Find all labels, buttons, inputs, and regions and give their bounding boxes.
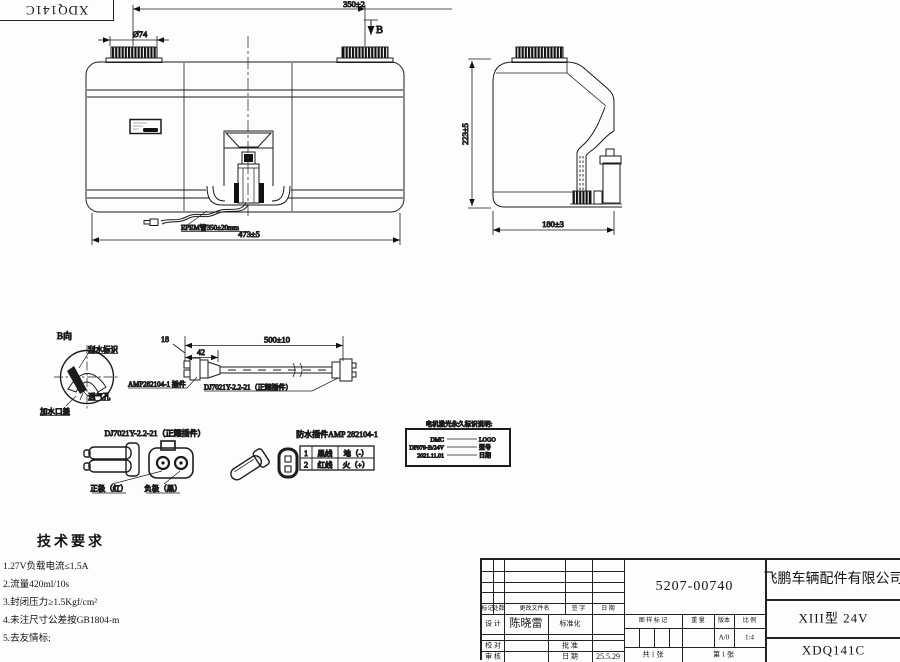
pin-table: 1 黑线 地（-） 2 红线 火（+）	[300, 446, 374, 470]
tech-requirements-list: 1.27V负载电流≤1.5A 2.流量420ml/10s 3.封闭压力≥1.5K…	[3, 558, 233, 648]
tech-item-4: 4.未注尺寸公差按GB1804-m	[3, 612, 233, 630]
laser-row3-content: 2021.11.01	[417, 454, 444, 460]
dj-connector-side	[332, 359, 356, 381]
dim-350-text: 350±2	[343, 0, 365, 9]
pump-recess	[207, 186, 290, 205]
dim-180-text: 180±3	[542, 219, 564, 229]
part-code: XDQ141C	[802, 643, 865, 656]
tech-requirements: 技术要求 1.27V负载电流≤1.5A 2.流量420ml/10s 3.封闭压力…	[3, 531, 233, 648]
wiper-mark-callout: 刮水标识	[79, 344, 118, 368]
pin-2-wire: 红线	[318, 460, 333, 470]
dim-350	[133, 5, 452, 46]
side-view: 223±5 180±3	[460, 47, 622, 235]
laser-row1-meaning: LOGO	[479, 438, 496, 444]
rev-count-header: 处数	[492, 606, 504, 612]
date-value: 25.5.29	[596, 653, 620, 661]
amp-detail-front	[279, 449, 297, 477]
rev-file-header: 更改文件名	[519, 606, 549, 612]
tech-item-1: 1.27V负载电流≤1.5A	[3, 558, 233, 576]
pin-2: 2	[304, 461, 308, 470]
washer-hose	[144, 203, 248, 226]
design-label: 设 计	[485, 621, 501, 628]
drawing-sheet: { "corner_stamp": { "code": "XDQ141C" },…	[0, 0, 900, 660]
amp-callout: AMP282104-1 插件	[128, 377, 197, 389]
tech-item-5: 5.去友情标;	[3, 630, 233, 648]
filler-cap-left	[106, 47, 162, 63]
amp-label: AMP282104-1 插件	[128, 380, 186, 389]
version-header: 版本	[718, 618, 730, 624]
hose-label: EPEM管350±20mm	[181, 223, 239, 232]
company-name: 飞鹏车辆配件有限公司	[764, 573, 900, 587]
model-designation: XIII型 24V	[798, 612, 868, 625]
harness-drawing: 18 42 500±10 AMP282104-1 插件 DJ7021Y-2.2-…	[128, 335, 356, 392]
pump-assembly	[207, 131, 290, 205]
laser-row2-meaning: 型号	[479, 444, 491, 452]
scale-value: 1:4	[745, 634, 754, 641]
side-inner-lines	[493, 62, 606, 192]
amp-connector-detail: 防水插件AMP 282104-1 1 黑线 地（-） 2 红线 火（+）	[227, 429, 378, 485]
dim-18-text: 18	[161, 335, 169, 344]
hose-callout: EPEM管350±20mm	[181, 211, 242, 232]
laser-title: 电机激光永久标识说明:	[426, 419, 493, 428]
harness-cable	[220, 363, 332, 377]
dim-473-text: 473±5	[238, 229, 260, 239]
filler-cap-side	[512, 47, 567, 63]
pin-1-signal: 地（-）	[344, 448, 369, 458]
view-b-detail: B向 刮水标识 透气孔 加水口盖	[40, 330, 120, 416]
dim-500-text: 500±10	[264, 335, 290, 345]
designer-name: 陈晓雷	[510, 619, 543, 630]
dj-connector-detail: DJ7021Y-2.2-21（正耀插件） 正极（红） 负极（黑）	[84, 428, 206, 493]
drawing-number: 5207-00740	[656, 580, 734, 594]
review-label: 审 核	[485, 653, 501, 660]
dim-223-text: 223±5	[460, 123, 470, 145]
dim-d74-text: Ø74	[133, 29, 148, 39]
front-view: 350±2 Ø74 B 473±5 EPEM管350±20mm	[86, 0, 452, 245]
laser-row3-meaning: 日期	[479, 452, 491, 460]
date-label: 日 期	[562, 653, 578, 660]
laser-marking-note: 电机激光永久标识说明: DMC LOGO DF979-B/24V 型号 2021…	[406, 419, 510, 466]
vent-hole-label: 透气孔	[88, 391, 111, 401]
title-block: 标记 处数 更改文件名 签 字 日 期 设 计 陈晓雷 标准化 校 对 批 准 …	[480, 558, 900, 660]
filler-cap-right	[337, 47, 393, 63]
pin-1: 1	[304, 449, 308, 458]
corner-stamp: XDQ141C	[0, 0, 114, 21]
version-value: A/0	[719, 634, 730, 641]
rev-date-header: 日 期	[601, 606, 615, 612]
tank-band-lines	[87, 90, 403, 198]
amp-detail-title: 防水插件AMP 282104-1	[296, 429, 378, 439]
view-b-arrow-label: B	[376, 25, 383, 36]
dj-detail-title: DJ7021Y-2.2-21（正耀插件）	[104, 428, 205, 438]
dim-223	[468, 59, 491, 208]
tech-item-3: 3.封闭压力≥1.5Kgf/cm²	[3, 594, 233, 612]
approve-label: 批 准	[562, 642, 578, 649]
tech-requirements-title: 技术要求	[3, 531, 139, 551]
polarity-callouts: 正极（红） 负极（黑）	[90, 471, 182, 493]
tech-item-2: 2.流量420ml/10s	[3, 576, 233, 594]
dj-detail-side	[84, 443, 139, 476]
sheet-number: 第 1 张	[713, 651, 734, 658]
pin-2-signal: 火（+）	[343, 461, 370, 470]
standardization-label: 标准化	[560, 621, 581, 628]
positive-label: 正极（红）	[90, 483, 128, 493]
amp-connector-side	[184, 358, 220, 380]
wiper-mark-label: 刮水标识	[88, 344, 118, 354]
amp-detail-side	[227, 448, 270, 485]
laser-row1-content: DMC	[430, 438, 444, 444]
filler-cap-callout: 加水口盖	[40, 396, 76, 416]
dj-label: DJ7021Y-2.2-21（正耀插件）	[204, 383, 292, 392]
dim-42-text: 42	[197, 348, 205, 357]
product-label-plate	[130, 120, 161, 134]
rev-sign-header: 签 字	[572, 606, 586, 612]
filler-cap-label: 加水口盖	[40, 406, 70, 416]
weight-header: 重 量	[691, 618, 705, 624]
laser-row2-content: DF979-B/24V	[409, 446, 444, 452]
proofread-label: 校 对	[485, 642, 501, 649]
scale-header: 比 例	[743, 618, 757, 624]
dj-callout: DJ7021Y-2.2-21（正耀插件）	[204, 378, 338, 392]
total-sheets: 共 1 张	[643, 651, 664, 658]
pin-1-wire: 黑线	[318, 448, 333, 458]
view-b-title: B向	[57, 330, 72, 341]
stamp-header: 图 样 标 记	[639, 618, 668, 624]
corner-stamp-code: XDQ141C	[25, 2, 88, 18]
negative-label: 负极（黑）	[144, 483, 182, 493]
